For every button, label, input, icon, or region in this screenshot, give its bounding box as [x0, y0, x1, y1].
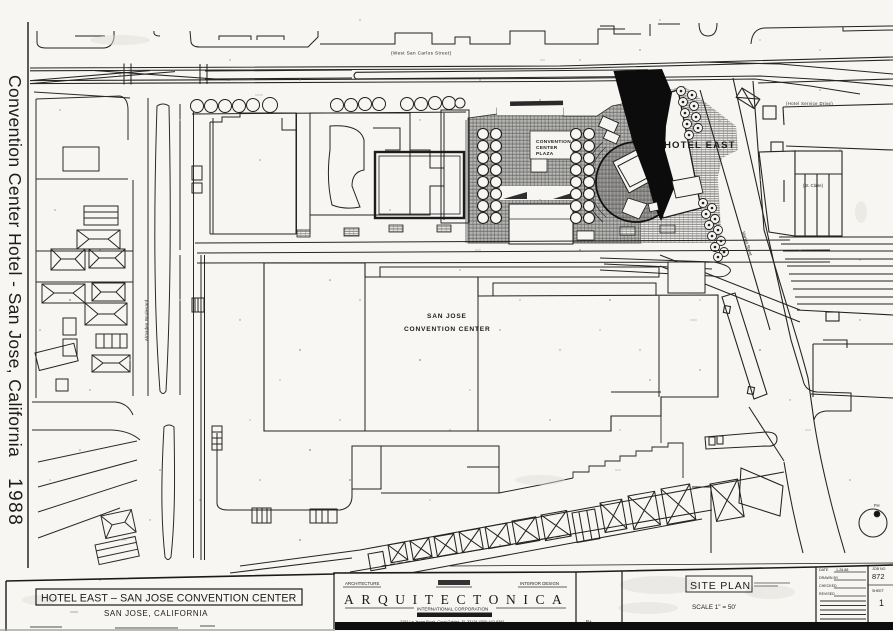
- svg-text:CONVENTION: CONVENTION: [536, 139, 571, 145]
- svg-text:CHECKED: CHECKED: [819, 584, 837, 588]
- svg-text:Convention Center Hotel - San: Convention Center Hotel - San Jose, Cali…: [5, 75, 25, 457]
- svg-text:ARCHITECTURE: ARCHITECTURE: [345, 581, 379, 586]
- svg-text:REVISED: REVISED: [819, 592, 835, 596]
- svg-text:INTERIOR DESIGN: INTERIOR DESIGN: [520, 581, 559, 586]
- svg-text:(West San Carlos Street): (West San Carlos Street): [391, 51, 452, 56]
- svg-text:SCALE 1" = 50': SCALE 1" = 50': [692, 604, 736, 611]
- svg-text:SAN JOSE: SAN JOSE: [427, 313, 467, 320]
- svg-text:JOB NO: JOB NO: [872, 567, 886, 571]
- svg-text:HOTEL EAST: HOTEL EAST: [664, 140, 736, 151]
- svg-text:1: 1: [879, 598, 884, 608]
- svg-text:(St. Claire): (St. Claire): [803, 183, 824, 188]
- svg-text:Almaden Boulevard: Almaden Boulevard: [144, 299, 149, 341]
- svg-text:SITE PLAN: SITE PLAN: [690, 580, 751, 592]
- svg-text:INTERNATIONAL CORPORATION: INTERNATIONAL CORPORATION: [417, 607, 488, 612]
- svg-text:1-26-88: 1-26-88: [836, 568, 848, 572]
- svg-text:872: 872: [872, 572, 885, 581]
- svg-text:SAN JOSE, CALIFORNIA: SAN JOSE, CALIFORNIA: [104, 609, 208, 618]
- svg-text:FH: FH: [874, 503, 880, 508]
- svg-text:DATE: DATE: [819, 568, 829, 572]
- svg-text:CENTER: CENTER: [536, 145, 558, 151]
- svg-text:PLAZA: PLAZA: [536, 151, 554, 157]
- svg-text:HOTEL EAST – SAN JOSE CONVENTI: HOTEL EAST – SAN JOSE CONVENTION CENTER: [41, 593, 297, 605]
- svg-text:ARQUITECTONICA: ARQUITECTONICA: [344, 592, 569, 607]
- svg-text:(Hotel Service Drive): (Hotel Service Drive): [786, 101, 833, 106]
- svg-text:CONVENTION CENTER: CONVENTION CENTER: [404, 326, 491, 333]
- svg-text:SHEET: SHEET: [872, 589, 885, 593]
- svg-text:B+: B+: [586, 619, 592, 624]
- svg-text:DRAWN BY: DRAWN BY: [819, 576, 839, 580]
- svg-text:1988: 1988: [4, 478, 25, 526]
